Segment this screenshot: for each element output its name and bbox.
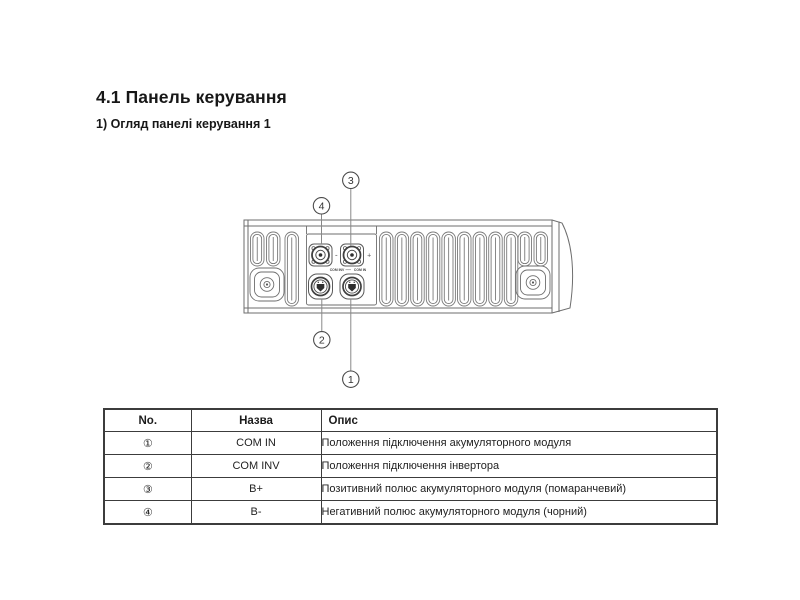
callout-1-label: 1: [348, 374, 354, 386]
table-row: ② COM INV Положення підключення інвертор…: [104, 455, 717, 478]
header-name: Назва: [191, 409, 321, 432]
ventilation-fins: [251, 232, 548, 306]
callout-1: 1: [343, 371, 359, 387]
row-4-desc: Негативний полюс акумуляторного модуля (…: [321, 501, 717, 525]
callout-3-label: 3: [348, 175, 354, 187]
connector-spec-table: No. Назва Опис ① COM IN Положення підклю…: [103, 408, 718, 525]
header-no: No.: [104, 409, 191, 432]
table-row: ③ B+ Позитивний полюс акумуляторного мод…: [104, 478, 717, 501]
row-2-desc: Положення підключення інвертора: [321, 455, 717, 478]
row-2-number: ②: [104, 455, 191, 478]
table-row: ① COM IN Положення підключення акумулято…: [104, 432, 717, 455]
header-desc: Опис: [321, 409, 717, 432]
callout-3: 3: [343, 172, 359, 188]
right-mounting-bracket: [516, 266, 550, 299]
table-header-row: No. Назва Опис: [104, 409, 717, 432]
device-diagram: - + COM INV COM IN 3 4 2 1: [230, 160, 590, 395]
callout-2-label: 2: [319, 335, 325, 347]
row-2-name: COM INV: [191, 455, 321, 478]
com-in-port-label: COM IN: [354, 268, 367, 272]
callout-4-label: 4: [319, 201, 325, 213]
com-inv-port-label: COM INV: [330, 268, 345, 272]
com-inv-port: [309, 274, 333, 299]
battery-terminal-negative: [309, 244, 332, 266]
row-1-number: ①: [104, 432, 191, 455]
row-3-number: ③: [104, 478, 191, 501]
minus-sign: -: [335, 251, 338, 260]
row-1-desc: Положення підключення акумуляторного мод…: [321, 432, 717, 455]
table-row: ④ B- Негативний полюс акумуляторного мод…: [104, 501, 717, 525]
row-3-name: B+: [191, 478, 321, 501]
battery-terminal-positive: [341, 244, 364, 266]
page-title: 4.1 Панель керування: [96, 87, 287, 108]
com-in-port: [340, 274, 364, 299]
callout-4: 4: [313, 198, 329, 214]
callout-2: 2: [314, 332, 330, 348]
row-3-desc: Позитивний полюс акумуляторного модуля (…: [321, 478, 717, 501]
page-subtitle: 1) Огляд панелі керування 1: [96, 117, 271, 131]
left-mounting-bracket: [250, 268, 284, 301]
row-4-number: ④: [104, 501, 191, 525]
plus-sign: +: [367, 253, 371, 260]
row-1-name: COM IN: [191, 432, 321, 455]
row-4-name: B-: [191, 501, 321, 525]
